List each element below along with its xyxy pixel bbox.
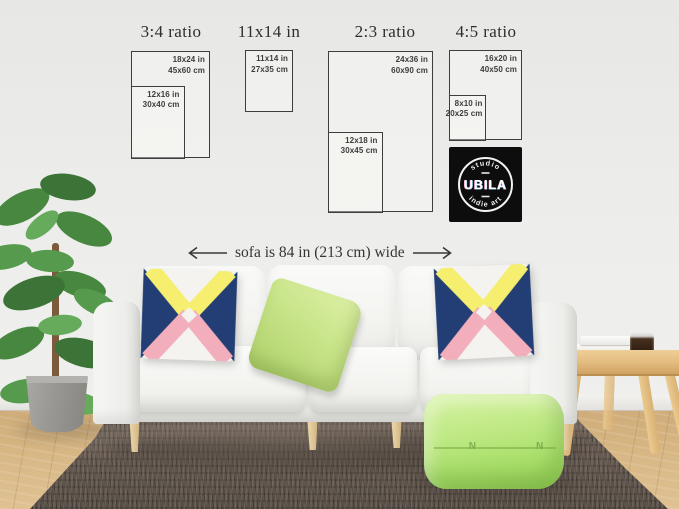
table-leg bbox=[637, 368, 660, 455]
pouf-stitch-mark: N bbox=[469, 441, 476, 452]
room-scene: 3:4 ratio 18x24 in 45x60 cm 12x16 in 30x… bbox=[0, 0, 679, 509]
pouf-stitch-mark: N bbox=[536, 441, 543, 452]
sofa-armrest-left bbox=[93, 302, 140, 424]
sofa-leg bbox=[128, 420, 141, 452]
accent-pillow-right bbox=[434, 264, 535, 361]
sofa-leg bbox=[306, 422, 319, 450]
table-leg bbox=[603, 366, 615, 430]
sofa-leg bbox=[390, 422, 403, 448]
table-leg bbox=[663, 366, 679, 446]
accent-pillow-left bbox=[140, 268, 237, 361]
green-pouf: N N bbox=[424, 394, 564, 489]
